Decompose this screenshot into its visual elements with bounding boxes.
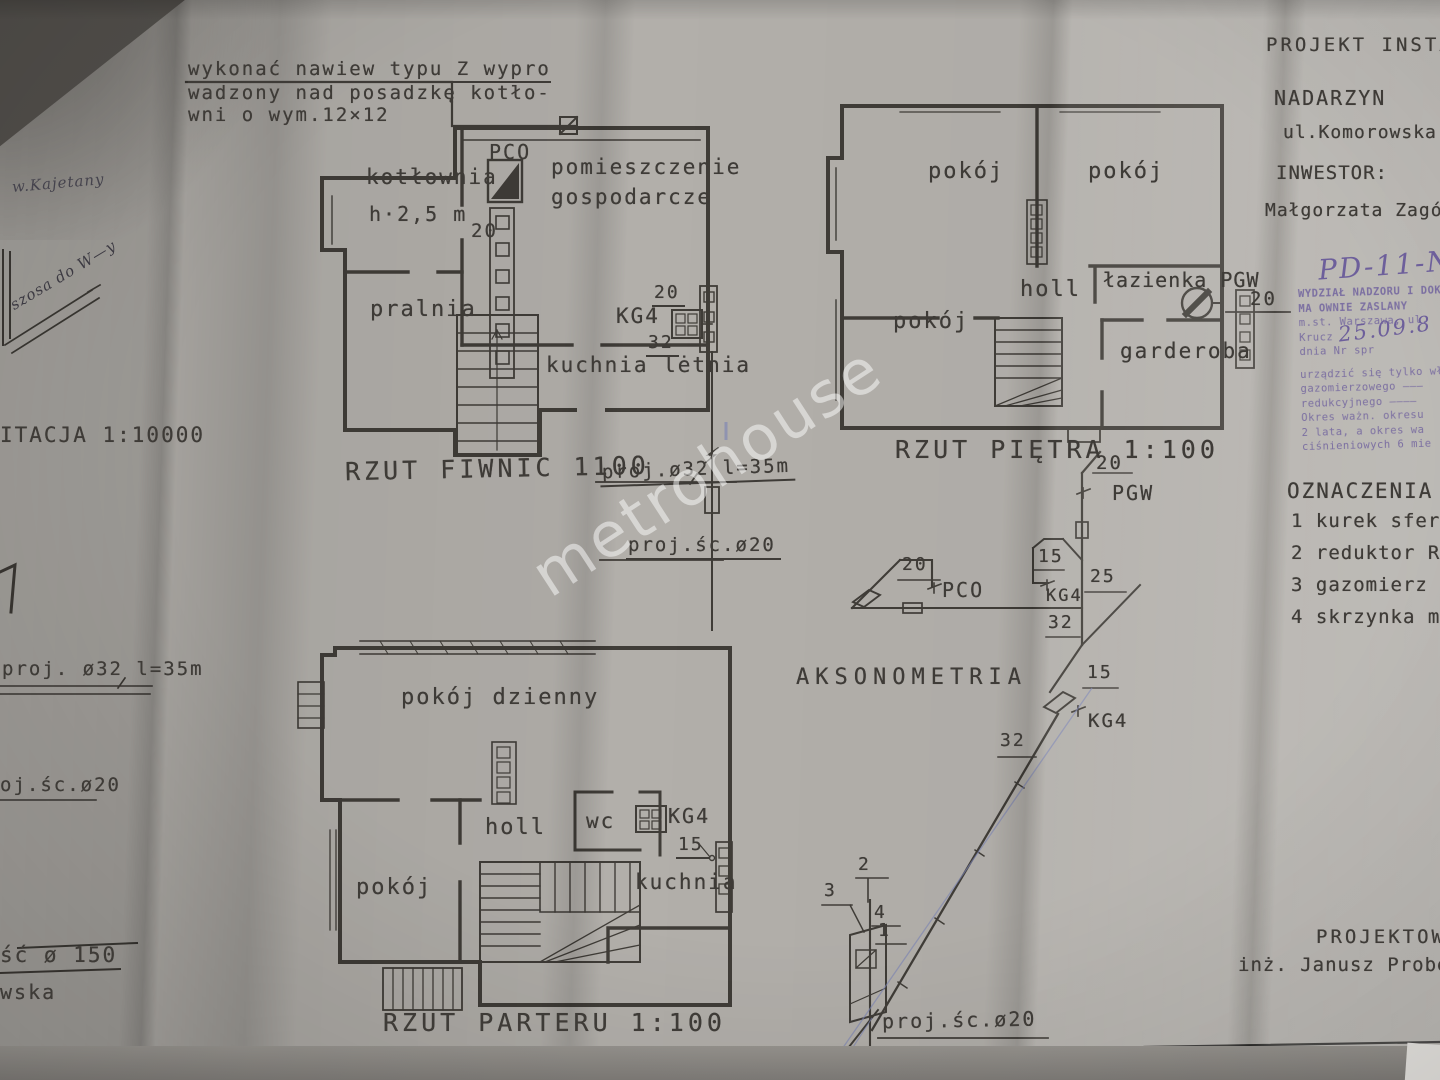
kg4-label-ground: KG4	[668, 806, 710, 827]
room-label-wc: wc	[586, 810, 615, 832]
room-label-pokoj-1: pokój	[928, 160, 1004, 183]
investor-label: INWESTOR:	[1276, 164, 1388, 184]
note-line-3: wni o wym.12×12	[188, 106, 390, 126]
project-title: PROJEKT INSTALAC	[1266, 36, 1440, 56]
axo-dim-20-pco: 20	[902, 556, 928, 575]
axo-kg4-label-b: KG4	[1088, 712, 1128, 732]
room-label-kotlownia: kotłownia	[366, 166, 498, 188]
dim-20-chimney: 20	[471, 222, 498, 242]
designer-name: inż. Janusz Probe st558	[1238, 956, 1440, 976]
axo-pco-label: PCO	[942, 580, 984, 601]
room-height-note: h·2,5 m	[369, 204, 467, 225]
room-label-pralnia: pralnia	[370, 298, 477, 321]
axo-callout-3: 3	[824, 882, 837, 901]
room-label-kuchnia: kuchnia	[635, 871, 738, 893]
stamp-text-block: WYDZIAŁ NADZORU I DOK MA OWNIE ZASLANY m…	[1298, 283, 1440, 455]
left-street-fragment: wska	[0, 982, 56, 1003]
axo-dim-20-top: 20	[1096, 454, 1123, 474]
designer-role-label: PROJEKTOWA	[1316, 928, 1440, 948]
room-label-pokoj-2: pokój	[1088, 160, 1164, 183]
legend-item-4: 4 skrzynka metalow	[1291, 608, 1440, 628]
axo-dim-32-a: 32	[1048, 614, 1074, 633]
legend-item-1: 1 kurek sferyczny GA	[1291, 512, 1440, 532]
pco-label: PCO	[489, 142, 531, 163]
room-label-holl-ground: holl	[485, 816, 546, 839]
left-pipe-label-proj20: oj.śc.ø20	[0, 776, 121, 796]
dim-15-ground: 15	[676, 836, 709, 859]
legend-title: OZNACZENIA	[1287, 480, 1433, 502]
dim-20-floor-riser: 20	[1250, 290, 1277, 310]
room-label-gospodarcze-2: gospodarcze	[551, 186, 712, 208]
axo-pgw-label: PGW	[1112, 483, 1154, 504]
project-street: ul.Komorowska 1	[1283, 124, 1440, 143]
investor-name: Małgorzata Zagórs	[1265, 202, 1440, 221]
room-label-pokoj-dzienny: pokój dzienny	[401, 686, 599, 709]
legend-item-2: 2 reduktor RG10	[1291, 544, 1440, 564]
axo-dim-32-b: 32	[1000, 732, 1026, 751]
axo-dim-25: 25	[1090, 568, 1116, 587]
room-label-holl-floor: holl	[1020, 278, 1081, 301]
room-label-pokoj-ground: pokój	[356, 876, 432, 899]
map-caption-sytuacja: ITACJA 1:10000	[0, 424, 205, 446]
room-label-kuchnia-letnia: kuchnia lėtnia	[546, 354, 751, 376]
plan-caption-floor: RZUT PIĘTRA 1:100	[895, 437, 1219, 463]
note-line-2: wadzony nad posadzkę kotło-	[188, 84, 551, 104]
kg4-label-basement: KG4	[616, 305, 660, 327]
plan-caption-ground: RZUT PARTERU 1:100	[383, 1010, 726, 1036]
axo-callout-1: 1	[878, 922, 891, 941]
room-label-garderoba: garderoba	[1120, 340, 1252, 362]
axo-title: AKSONOMETRIA	[796, 666, 1027, 689]
photographed-blueprint: wykonać nawiew typu Z wypro wadzony nad …	[0, 0, 1440, 1080]
left-dim-150: ść ø 150	[0, 944, 117, 966]
room-label-lazienka-pgw: łazienka PGW	[1103, 270, 1260, 291]
left-pipe-label-proj32: proj. ø32 l=35m	[2, 660, 204, 680]
axo-dim-15-left: 15	[1038, 548, 1064, 567]
project-city: NADARZYN	[1274, 88, 1386, 109]
axo-proj20-label: proj.śc.ø20	[882, 1009, 1037, 1033]
note-line-1: wykonać nawiew typu Z wypro	[188, 60, 551, 83]
axo-dim-15-right: 15	[1087, 664, 1113, 683]
legend-item-3: 3 gazomierz 4G-6	[1291, 576, 1440, 596]
axo-kg4-label-a: KG4	[1046, 588, 1083, 606]
axo-callout-2: 2	[858, 856, 871, 875]
room-label-gospodarcze-1: pomieszczenie	[551, 156, 741, 178]
